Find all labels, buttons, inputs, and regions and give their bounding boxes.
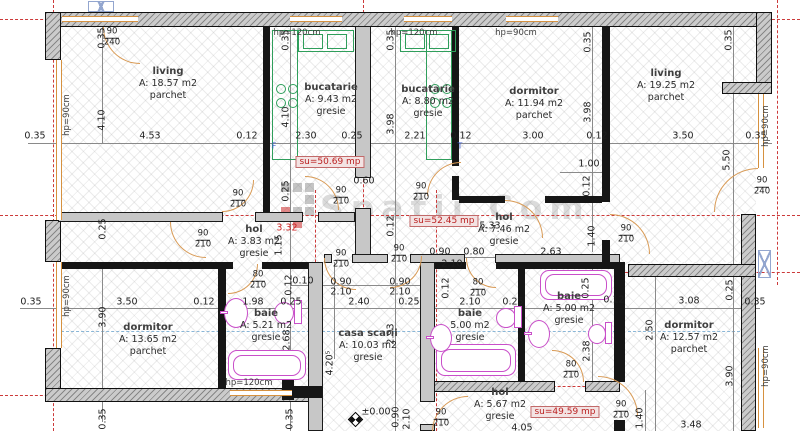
room-area: 5.00 m2	[450, 320, 489, 331]
dimension-label: 0.12	[441, 277, 451, 298]
room-name: baie	[450, 308, 489, 319]
dimension-label: 0.10	[292, 276, 313, 286]
dimension-label: 3.00	[522, 131, 543, 141]
room-area: A: 5.00 m2	[543, 303, 595, 314]
dimension-label: 0.25	[281, 180, 291, 201]
dimension-label: 0.25	[398, 297, 419, 307]
dimension-label: 0.12	[603, 295, 624, 305]
door-size-label: 90210	[333, 187, 349, 208]
hp-sill-label: hp=90cm	[761, 345, 771, 387]
dimension-label: 0.12	[386, 215, 396, 236]
dimension-label: 0.12	[586, 131, 607, 141]
dimension-label: 0.60	[353, 176, 374, 186]
hp-sill-label: hp=120cm	[390, 28, 437, 38]
room-area: A: 10.03 m2	[338, 340, 397, 351]
dimension-label: 4.05	[511, 423, 532, 431]
room-floor-type: parchet	[637, 92, 695, 103]
room-area: A: 18.57 m2	[139, 78, 197, 89]
hp-sill-label: hp=90cm	[62, 275, 72, 317]
dimension-label: 0.35	[24, 131, 45, 141]
room-name: dormitor	[660, 320, 718, 331]
dimension-label: 1.98	[242, 297, 263, 307]
room-label: dormitorA: 13.65 m2parchet	[119, 322, 177, 357]
room-floor-type: gresie	[474, 411, 526, 422]
room-label: dormitorA: 11.94 m2parchet	[505, 86, 563, 121]
room-name: hol	[228, 224, 280, 235]
room-name: dormitor	[505, 86, 563, 97]
dimension-label: 2.40	[348, 297, 369, 307]
door-size-label: 90240	[754, 177, 770, 198]
dimension-label: 3.48	[680, 420, 701, 430]
room-area: A: 3.83 m2	[228, 236, 280, 247]
dimension-label: 0.35	[744, 297, 765, 307]
dimension-label: 1.40	[635, 407, 645, 428]
dimension-label: 0.25	[341, 131, 362, 141]
room-name: bucatarie	[304, 82, 358, 93]
dimension-label: 2.10	[330, 287, 351, 297]
dimension-label: 3.98	[386, 113, 396, 134]
room-name: dormitor	[119, 322, 177, 333]
dimension-label: 0.12	[582, 175, 592, 196]
door-size-label: 90210	[333, 250, 349, 271]
room-name: living	[637, 68, 695, 79]
room-area: A: 7.46 m2	[478, 224, 530, 235]
door-size-label: 80210	[470, 279, 486, 300]
dimension-label: 3.90	[725, 365, 735, 386]
dimension-label: 4.10	[281, 106, 291, 127]
hp-sill-label: hp=120cm	[225, 378, 272, 388]
room-name: bucatarie	[401, 84, 455, 95]
room-label: livingA: 19.25 m2parchet	[637, 68, 695, 103]
door-size-label: 80210	[250, 271, 266, 292]
dimension-label: 5.50	[722, 149, 732, 170]
dimension-label: 3.50	[116, 297, 137, 307]
room-label: casa scariiA: 10.03 m2gresie	[338, 328, 397, 363]
door-size-label: 90210	[230, 190, 246, 211]
window-letter: F	[272, 142, 277, 151]
floor-plan-canvas: Spatii Com	[0, 0, 800, 431]
dimension-label: 2.10	[389, 287, 410, 297]
labels-layer: 0.354.530.122.300.252.210.123.000.123.50…	[0, 0, 800, 431]
dimension-label: 3.98	[583, 101, 593, 122]
dimension-label: 0.25	[280, 297, 301, 307]
room-label: livingA: 18.57 m2parchet	[139, 66, 197, 101]
room-label: holA: 3.83 m2gresie	[228, 224, 280, 259]
room-area: A: 13.65 m2	[119, 334, 177, 345]
room-floor-type: gresie	[401, 108, 455, 119]
dimension-label: 0.80	[463, 247, 484, 257]
dimension-label: 2.50	[645, 319, 655, 340]
door-size-label: 90210	[195, 230, 211, 251]
room-floor-type: gresie	[478, 236, 530, 247]
hp-sill-label: hp=90cm	[62, 94, 72, 136]
dimension-label: 2.10	[402, 408, 412, 429]
room-label: baieA: 5.21 m2gresie	[240, 308, 292, 343]
room-area: A: 12.57 m2	[660, 332, 718, 343]
dimension-label: 4.53	[139, 131, 160, 141]
room-name: casa scarii	[338, 328, 397, 339]
hp-sill-label: hp=90cm	[495, 28, 537, 38]
dimension-label: 0.35	[98, 408, 108, 429]
door-size-label: 90240	[104, 28, 120, 49]
room-name: baie	[240, 308, 292, 319]
room-label: holA: 5.67 m2gresie	[474, 387, 526, 422]
su-area-label: su=50.69 mp	[295, 156, 364, 168]
door-size-label: 90210	[433, 409, 449, 430]
room-label: bucatarieA: 9.43 m2gresie	[304, 82, 358, 117]
room-floor-type: gresie	[240, 332, 292, 343]
dimension-label: 1.40	[587, 225, 597, 246]
room-floor-type: gresie	[543, 315, 595, 326]
hp-sill-label: hp=120cm	[273, 28, 320, 38]
su-area-label: su=52.45 mp	[409, 215, 478, 227]
dimension-label: 0.35	[583, 31, 593, 52]
door-size-label: 90210	[413, 183, 429, 204]
dimension-label: 2.21	[404, 131, 425, 141]
door-size-label: 90210	[391, 245, 407, 266]
dimension-label: 2.10	[441, 259, 462, 269]
room-area: A: 5.67 m2	[474, 399, 526, 410]
room-label: bucatarieA: 8.80 m2gresie	[401, 84, 455, 119]
room-label: baie5.00 m2gresie	[450, 308, 489, 343]
dimension-label: 0.25	[725, 279, 735, 300]
room-label: dormitorA: 12.57 m2parchet	[660, 320, 718, 355]
room-floor-type: parchet	[660, 344, 718, 355]
dimension-label: 0.12	[236, 131, 257, 141]
room-name: baie	[543, 291, 595, 302]
window-letter: T	[458, 142, 463, 151]
door-size-label: 90210	[618, 225, 634, 246]
dimension-label: 0.12	[193, 297, 214, 307]
dimension-label: 0.35	[285, 408, 295, 429]
dimension-label: 3.90	[98, 306, 108, 327]
dimension-label: 0.90	[391, 406, 401, 427]
room-name: hol	[474, 387, 526, 398]
room-area: A: 9.43 m2	[304, 94, 358, 105]
dimension-label: 2.63	[540, 247, 561, 257]
dimension-label: 4.20⁵	[325, 351, 335, 376]
room-name: hol	[478, 212, 530, 223]
room-floor-type: parchet	[139, 90, 197, 101]
dimension-label: 0.25	[98, 218, 108, 239]
dimension-label: 2.30	[295, 131, 316, 141]
dimension-label: 0.12	[450, 131, 471, 141]
dimension-label: 0.35	[724, 29, 734, 50]
room-floor-type: gresie	[304, 106, 358, 117]
room-floor-type: gresie	[338, 352, 397, 363]
room-floor-type: parchet	[119, 346, 177, 357]
room-label: baieA: 5.00 m2gresie	[543, 291, 595, 326]
door-size-label: 90210	[613, 401, 629, 422]
room-label: holA: 7.46 m2gresie	[478, 212, 530, 247]
dimension-label: 1.00	[578, 159, 599, 169]
room-area: A: 5.21 m2	[240, 320, 292, 331]
dimension-label: 0.25	[502, 297, 523, 307]
room-name: living	[139, 66, 197, 77]
dimension-label: 0.12	[284, 274, 294, 295]
dimension-label: 0.90	[429, 247, 450, 257]
dimension-label: 3.08	[678, 296, 699, 306]
dimension-label: 2.38	[582, 340, 592, 361]
su-area-label: su=49.59 mp	[530, 406, 599, 418]
room-floor-type: gresie	[450, 332, 489, 343]
room-area: A: 19.25 m2	[637, 80, 695, 91]
room-floor-type: parchet	[505, 110, 563, 121]
dimension-label: 4.10	[97, 109, 107, 130]
hp-sill-label: hp=90cm	[761, 105, 771, 147]
room-floor-type: gresie	[228, 248, 280, 259]
dimension-label: 0.35	[20, 297, 41, 307]
dimension-label: 3.50	[672, 131, 693, 141]
door-size-label: 80210	[563, 361, 579, 382]
room-area: A: 11.94 m2	[505, 98, 563, 109]
room-area: A: 8.80 m2	[401, 96, 455, 107]
